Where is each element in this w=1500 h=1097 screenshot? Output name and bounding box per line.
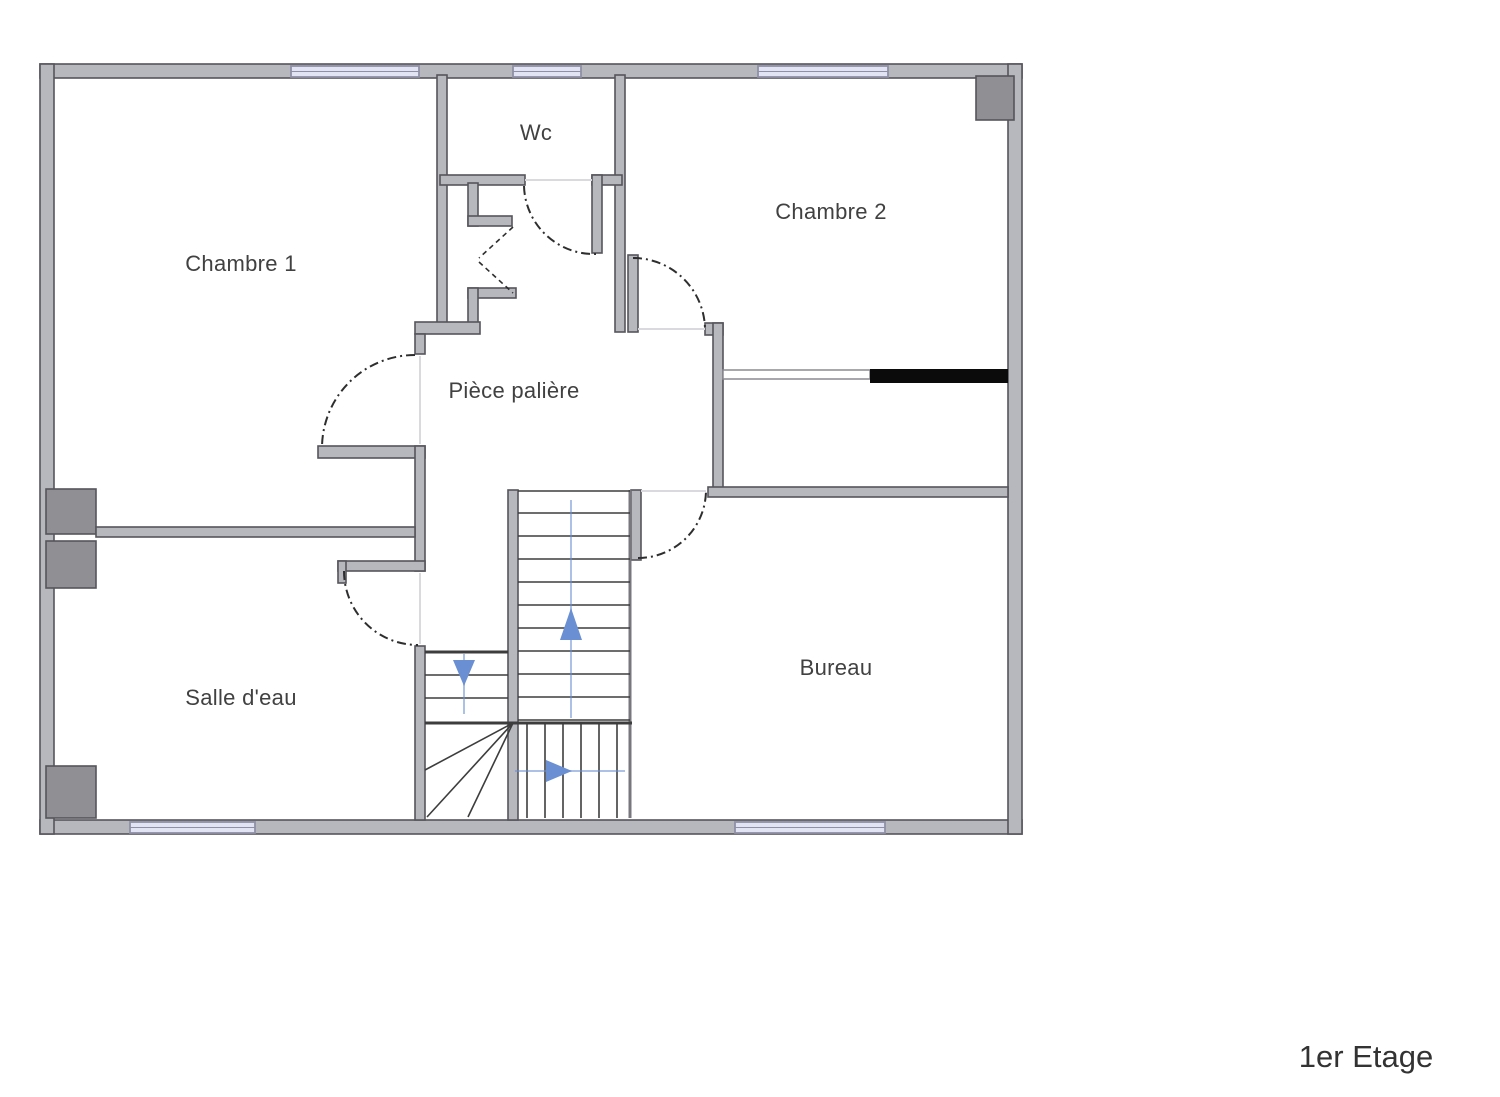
wall-bureau-door-jamb [631, 490, 641, 560]
room-label-piece-paliere: Pièce palière [448, 378, 579, 404]
floor-plan-drawing [0, 0, 1500, 1097]
wall-chambre2-door-jamb [628, 255, 638, 332]
wall-box-top-right [976, 76, 1014, 120]
stairs-right-arrow [515, 760, 625, 782]
window-bottom-salle-d-eau [130, 822, 255, 833]
door-arc-chambre-2 [633, 258, 705, 330]
room-label-bureau: Bureau [800, 655, 873, 681]
wall-chambre1-south-stub [318, 446, 425, 458]
floor-plan: Chambre 1 Wc Chambre 2 Pièce palière Sal… [0, 0, 1500, 1097]
window-top-chambre-2 [758, 66, 888, 77]
staircase [425, 490, 632, 818]
room-label-salle-d-eau: Salle d'eau [185, 685, 296, 711]
window-top-wc [513, 66, 581, 77]
wall-salledeau-door-stub [338, 561, 425, 571]
wall-chambre2-west [713, 323, 723, 492]
door-arc-wc [524, 186, 596, 254]
wall-paliere-north [415, 322, 480, 334]
stairs-up-arrow [560, 500, 582, 718]
door-arc-chambre-1 [322, 355, 415, 448]
wall-chambre1-wc [437, 75, 447, 332]
wall-chambre1-door-jamb [415, 334, 425, 354]
wall-bureau-north [708, 487, 1008, 497]
window-bottom-bureau [735, 822, 885, 833]
door-arc-bureau [638, 490, 706, 558]
sliding-door-panel [870, 369, 1008, 383]
wall-box-left-2 [46, 541, 96, 588]
room-label-chambre-1: Chambre 1 [185, 251, 297, 277]
wall-wc-door-jamb [592, 175, 602, 253]
wall-wc-east [615, 75, 625, 332]
wall-box-left-3 [46, 766, 96, 818]
window-top-chambre-1 [291, 66, 419, 77]
door-arc-salle-d-eau [344, 571, 418, 645]
room-label-chambre-2: Chambre 2 [775, 199, 887, 225]
stairs-down-arrow [453, 654, 475, 714]
floor-title: 1er Etage [1299, 1039, 1433, 1075]
closet-double-door [479, 227, 513, 293]
chambre2-sliding-door [723, 369, 1008, 383]
room-label-wc: Wc [520, 120, 552, 146]
wall-closet-top-h [468, 216, 512, 226]
wall-box-left-1 [46, 489, 96, 534]
wall-wc-south-a [440, 175, 525, 185]
doorway-thresholds [420, 180, 706, 644]
wall-stairs-west [415, 646, 425, 820]
sliding-door-track [723, 370, 870, 379]
wall-chambre1-salledeau [96, 527, 415, 537]
wall-paliere-west [415, 446, 425, 571]
stair-treads-up-run [518, 491, 630, 720]
stair-winder-steps [425, 723, 513, 817]
